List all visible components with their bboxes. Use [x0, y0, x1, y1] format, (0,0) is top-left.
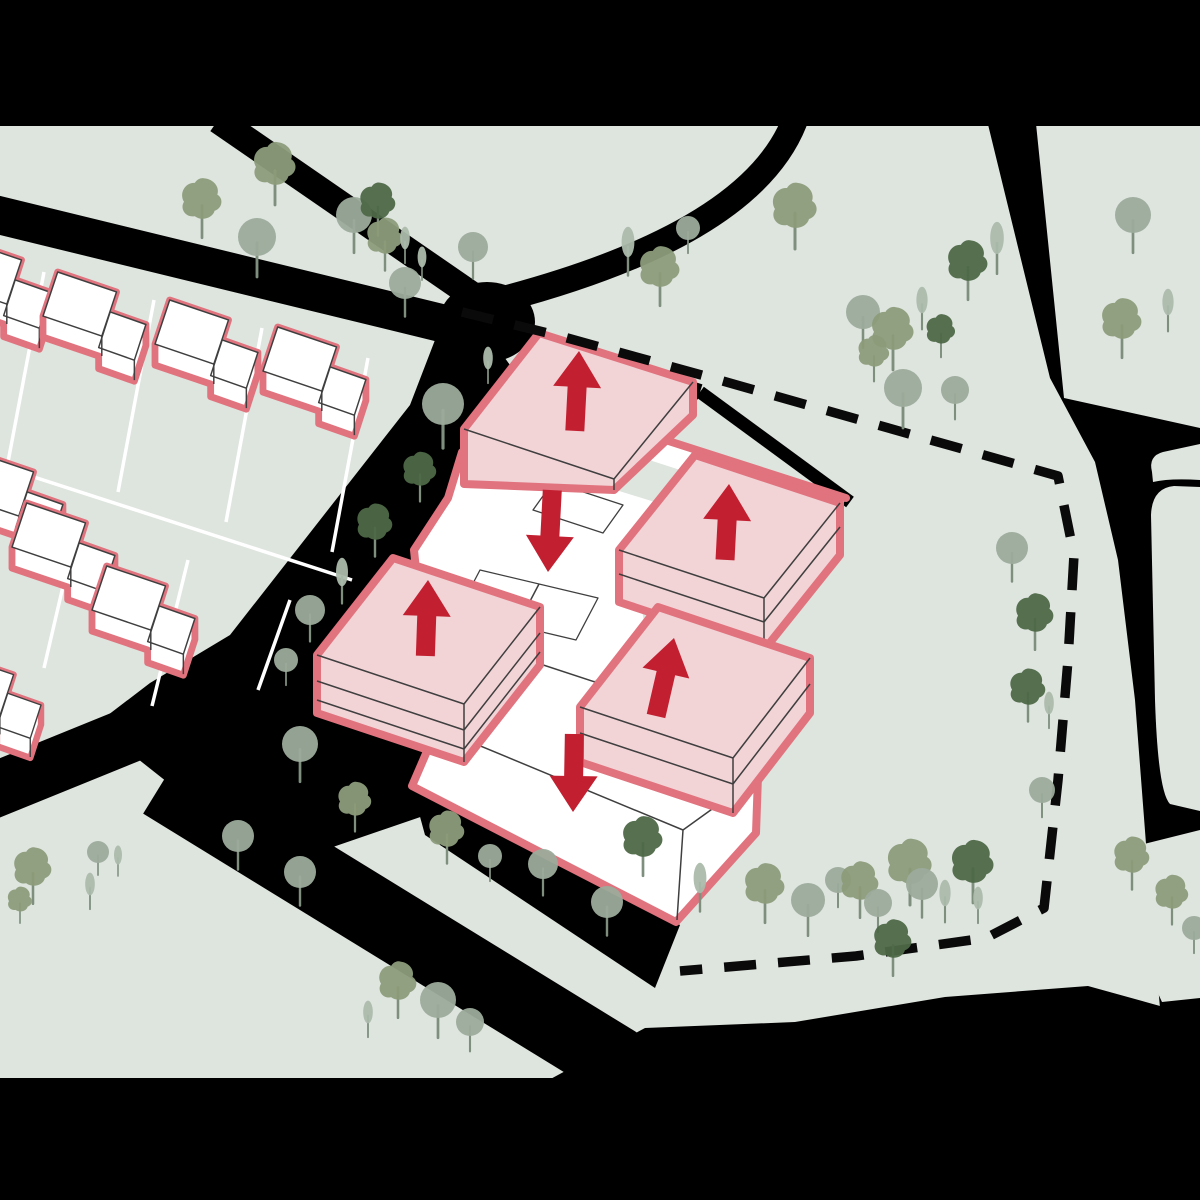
tree-canopy	[456, 1008, 484, 1036]
tree-canopy	[238, 218, 276, 256]
tree-canopy	[295, 595, 325, 625]
tree-canopy	[418, 247, 427, 268]
tree-canopy	[1162, 289, 1173, 316]
tree-canopy	[996, 532, 1028, 564]
tree-canopy	[864, 889, 892, 917]
tree-canopy	[528, 849, 558, 879]
tree-canopy	[282, 726, 318, 762]
tree-canopy	[941, 376, 969, 404]
tree-canopy	[363, 1001, 373, 1024]
tree-canopy	[389, 267, 421, 299]
tree-canopy	[1115, 197, 1151, 233]
tree-canopy	[1044, 692, 1054, 715]
tree-canopy	[791, 883, 825, 917]
letterbox-bottom	[0, 1078, 1200, 1200]
tree-canopy	[222, 820, 254, 852]
tree-canopy	[694, 863, 707, 893]
tree-canopy	[114, 846, 122, 865]
site-massing-diagram	[0, 0, 1200, 1200]
tree-canopy	[87, 841, 109, 863]
tree-canopy	[483, 347, 493, 370]
tree-canopy	[916, 287, 927, 314]
tree-canopy	[1029, 777, 1055, 803]
tree-canopy	[478, 844, 502, 868]
tree-canopy	[85, 873, 95, 896]
tree-canopy	[458, 232, 488, 262]
tree-canopy	[400, 227, 410, 250]
tree-canopy	[990, 222, 1004, 254]
tree-canopy	[622, 227, 635, 257]
tree-canopy	[274, 648, 298, 672]
tree-canopy	[284, 856, 316, 888]
tree-canopy	[422, 383, 464, 425]
tree-canopy	[676, 216, 700, 240]
letterbox-top	[0, 0, 1200, 126]
tree-canopy	[939, 880, 950, 907]
tree-canopy	[420, 982, 456, 1018]
tree-canopy	[906, 868, 938, 900]
tree-canopy	[336, 558, 348, 587]
tree-canopy	[591, 886, 623, 918]
tree-canopy	[884, 369, 922, 407]
tree-canopy	[973, 887, 983, 910]
